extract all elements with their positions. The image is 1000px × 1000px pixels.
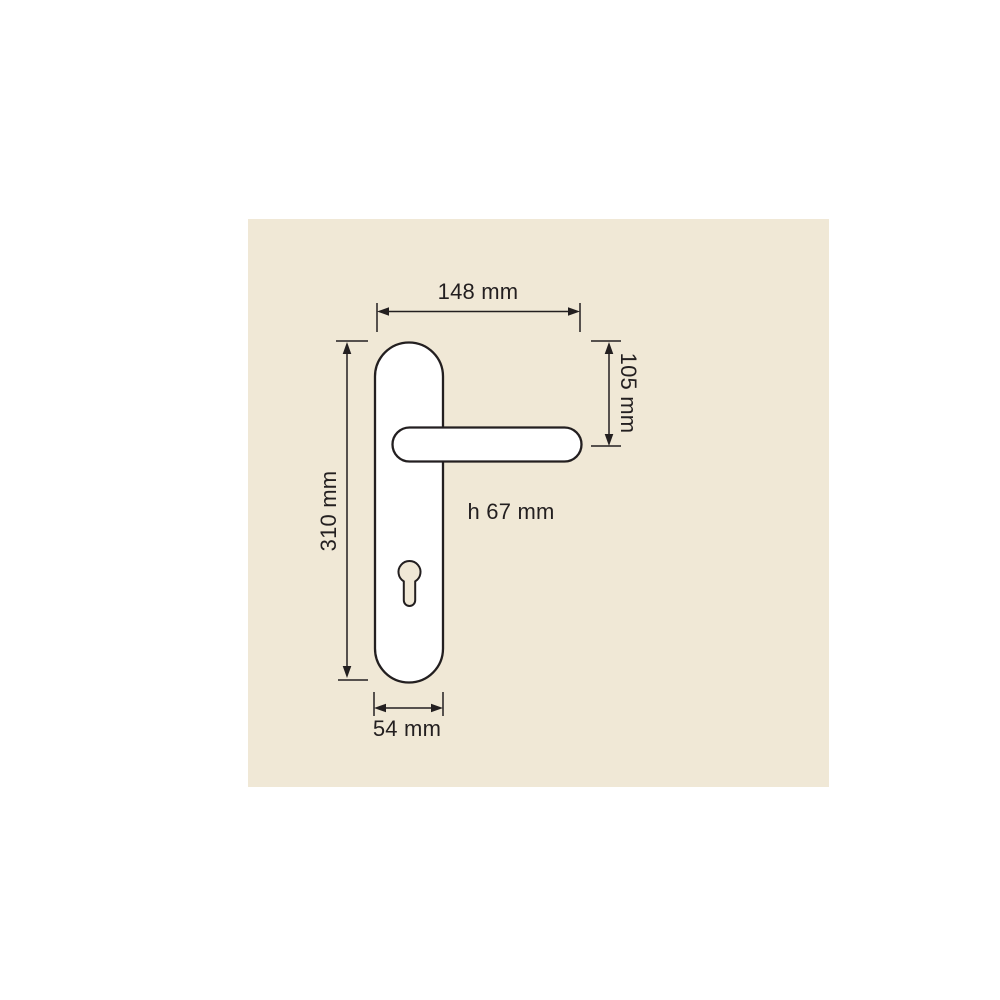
dimension-plate-width (374, 692, 443, 716)
dim-label-plate-width: 54 mm (373, 716, 441, 742)
backplate (375, 343, 443, 683)
arrowhead-left-icon (377, 307, 389, 316)
arrowhead-down-icon (343, 666, 352, 678)
lever-handle (393, 428, 582, 462)
dimension-overall-width (377, 303, 580, 332)
arrowhead-right-icon (431, 704, 443, 713)
arrowhead-up-icon (605, 342, 614, 354)
arrowhead-up-icon (343, 342, 352, 354)
arrowhead-left-icon (374, 704, 386, 713)
arrowhead-right-icon (568, 307, 580, 316)
dim-label-handle-height: h 67 mm (468, 499, 555, 525)
arrowhead-down-icon (605, 434, 614, 446)
dim-label-overall-width: 148 mm (438, 279, 519, 305)
dim-label-handle-drop: 105 mm (615, 353, 641, 434)
dim-label-plate-height: 310 mm (316, 471, 342, 552)
